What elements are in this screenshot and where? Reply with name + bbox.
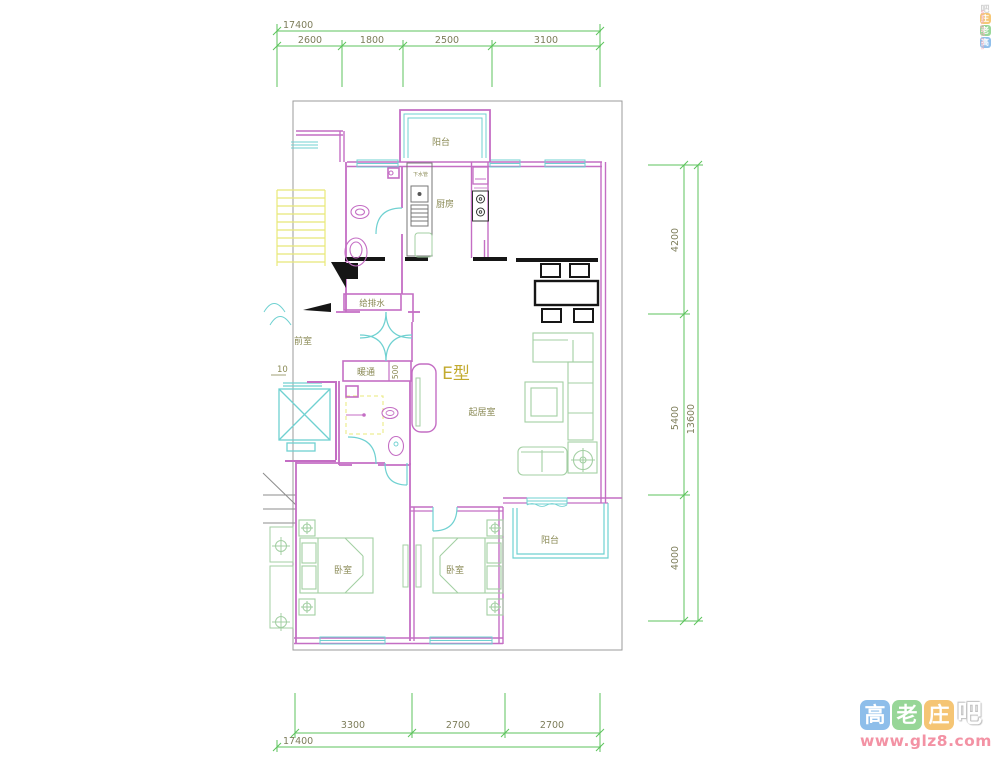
floor-plan-drawing: 17400 2600 1800 2500 3100 4200 5400 4000…	[0, 0, 1000, 762]
bathroom-top-fixtures	[345, 168, 399, 266]
balcony-top	[400, 110, 490, 162]
bedroom-divider-wardrobe	[403, 545, 421, 587]
floor-plan-page: 17400 2600 1800 2500 3100 4200 5400 4000…	[0, 0, 1000, 762]
kitchen-stove	[473, 167, 489, 221]
watermark-mini-site-url: www.glz8.com	[979, 10, 985, 50]
dim-bottom-overall: 17400	[283, 736, 313, 747]
label-hvac-width: 500	[391, 365, 400, 380]
dim-bottom-seg-1: 3300	[341, 720, 365, 731]
label-living-room: 起居室	[468, 406, 495, 418]
balcony-bottom	[513, 503, 608, 558]
stairs-upper	[277, 190, 325, 266]
bathroom2-fixtures	[346, 378, 420, 456]
watermark-char-zhuang: 庄	[929, 705, 950, 726]
door-entry-double	[360, 312, 412, 361]
label-front-room: 前室	[294, 335, 312, 347]
label-bedroom-right: 卧室	[446, 564, 464, 576]
dim-top-seg-1: 2600	[298, 35, 322, 46]
stairs-lower	[263, 473, 296, 523]
watermark-square-zhuang: 庄	[924, 700, 954, 730]
dim-top-seg-2: 1800	[360, 35, 384, 46]
dim-top-seg-3: 2500	[435, 35, 459, 46]
shrub-arcs	[264, 304, 291, 326]
label-drain-pipe: 下水管	[413, 171, 428, 178]
dimension-top	[273, 24, 604, 87]
watermark: 高 老 庄 吧 www.glz8.com	[860, 694, 996, 758]
watermark-square-gao: 高	[860, 700, 890, 730]
sofa-set	[518, 333, 597, 475]
dim-right-overall: 13600	[686, 404, 697, 434]
label-hvac: 暖通	[357, 366, 375, 378]
label-balcony-bottom: 阳台	[541, 534, 559, 546]
watermark-char-gao: 高	[865, 705, 886, 726]
dim-right-seg-1: 4200	[670, 228, 681, 252]
door-bathroom-2	[348, 437, 376, 464]
dim-bottom-seg-3: 2700	[540, 720, 564, 731]
label-plumbing: 给排水	[359, 298, 385, 309]
dim-top-seg-4: 3100	[534, 35, 558, 46]
unit-type-title: E型	[442, 364, 470, 384]
watermark-square-lao: 老	[892, 700, 922, 730]
door-bedroom-left	[385, 463, 407, 485]
dim-right-seg-3: 4000	[670, 546, 681, 570]
dim-right-seg-2: 5400	[670, 406, 681, 430]
label-balcony-top: 阳台	[432, 136, 450, 148]
elevator-shaft	[279, 383, 330, 451]
dimension-top-text: 17400 2600 1800 2500 3100	[283, 20, 558, 46]
door-bathroom-top	[376, 208, 402, 234]
label-kitchen: 厨房	[436, 198, 454, 210]
door-bedroom-right	[433, 507, 457, 531]
window-living-south	[527, 498, 567, 504]
planter-platforms	[270, 527, 293, 631]
watermark-mini: 吧 庄 老 高 www.glz8.com	[972, 2, 998, 60]
bedroom-right-furniture	[433, 520, 503, 615]
label-bedroom-left: 卧室	[334, 564, 352, 576]
window-topleft	[291, 142, 318, 148]
watermark-char-ba: 吧	[957, 694, 982, 730]
dim-top-overall: 17400	[283, 20, 313, 31]
dining-set	[535, 264, 598, 322]
label-partial-dim: 10	[277, 365, 288, 375]
watermark-char-lao: 老	[897, 705, 918, 726]
watermark-site-url: www.glz8.com	[860, 732, 996, 750]
dim-bottom-seg-2: 2700	[446, 720, 470, 731]
